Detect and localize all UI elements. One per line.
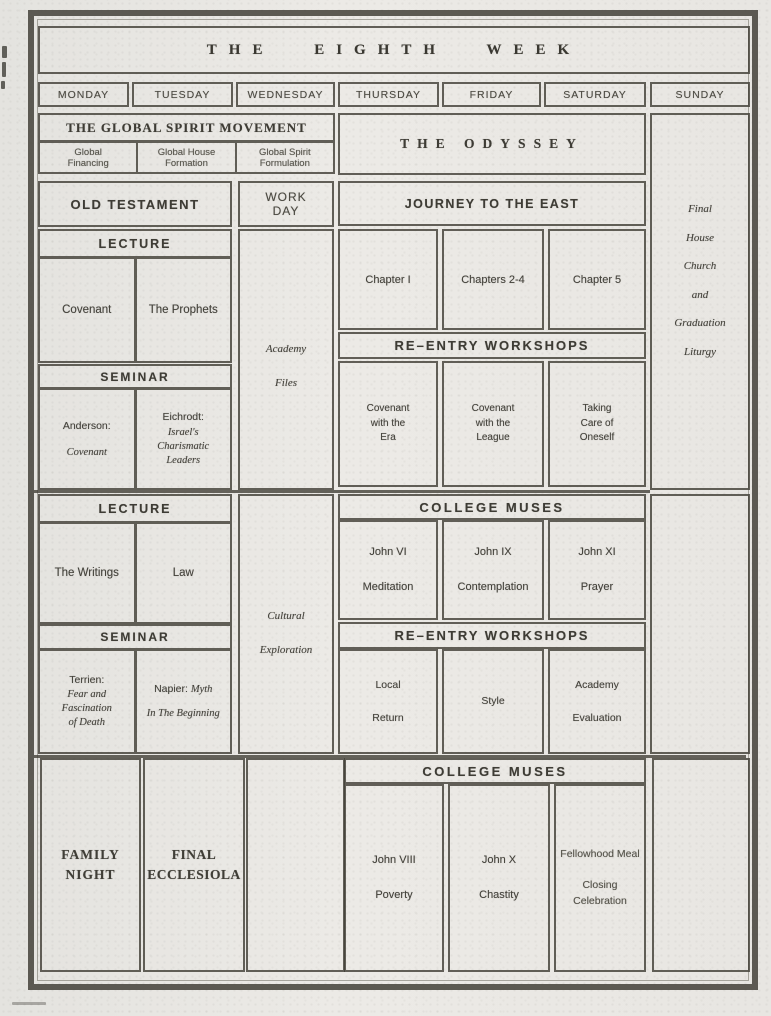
- cell-style: Style: [442, 649, 544, 754]
- cell-john-x-chastity: John X Chastity: [448, 784, 550, 972]
- cell-covenant-with-league: Covenant with the League: [442, 361, 544, 487]
- cell-work-day: WORK DAY: [238, 181, 334, 227]
- cell-anderson-covenant: Anderson: Covenant: [63, 420, 111, 458]
- section-seminar-1: SEMINAR Anderson: Covenant Eichrodt: Isr…: [38, 364, 232, 490]
- cell-wednesday-empty-bottom: [246, 758, 345, 972]
- seminar-1-header: SEMINAR: [40, 366, 230, 390]
- cell-fellowhood-meal: Fellowhood Meal Closing Celebration: [554, 784, 646, 972]
- cell-local-return: Local Return: [338, 649, 438, 754]
- lecture-2-header: LECTURE: [40, 496, 230, 524]
- reentry-1-header: RE–ENTRY WORKSHOPS: [338, 332, 646, 359]
- seminar-speaker: Eichrodt:: [163, 411, 204, 425]
- cell-the-writings: The Writings: [40, 524, 134, 622]
- cell-terrien-death: Terrien: Fear and Fascination of Death: [62, 674, 112, 730]
- cell-covenant-with-era: Covenant with the Era: [338, 361, 438, 487]
- cell-final-ecclesiola: FINAL ECCLESIOLA: [143, 758, 245, 972]
- day-header-monday: MONDAY: [38, 82, 129, 107]
- section-lecture-1: LECTURE Covenant The Prophets: [38, 229, 232, 363]
- cell-the-prophets: The Prophets: [134, 259, 231, 361]
- cell-global-financing: Global Financing: [40, 143, 136, 172]
- scan-artifact: [1, 81, 5, 89]
- cell-napier-myth: Napier: Myth In The Beginning: [147, 678, 220, 724]
- cell-covenant: Covenant: [40, 259, 134, 361]
- day-header-saturday: SATURDAY: [544, 82, 646, 107]
- day-header-friday: FRIDAY: [442, 82, 541, 107]
- lecture-1-header: LECTURE: [40, 231, 230, 259]
- scan-artifact: [2, 46, 7, 58]
- section-global-spirit: THE GLOBAL SPIRIT MOVEMENT Global Financ…: [38, 113, 335, 174]
- cell-sunday-empty-middle: [650, 494, 750, 754]
- cell-academy-files: Academy Files: [238, 229, 334, 490]
- seminar-speaker: Anderson:: [63, 420, 111, 432]
- section-lecture-2: LECTURE The Writings Law: [38, 494, 232, 624]
- cell-taking-care-of-oneself: Taking Care of Oneself: [548, 361, 646, 487]
- cell-family-night: FAMILY NIGHT: [40, 758, 141, 972]
- day-header-tuesday: TUESDAY: [132, 82, 233, 107]
- seminar-work: Covenant: [67, 447, 107, 458]
- day-header-thursday: THURSDAY: [338, 82, 439, 107]
- section-divider: [34, 490, 650, 493]
- seminar-speaker: Terrien:: [69, 674, 104, 688]
- cell-old-testament: OLD TESTAMENT: [38, 181, 232, 227]
- section-seminar-2: SEMINAR Terrien: Fear and Fascination of…: [38, 624, 232, 754]
- page-title: THE EIGHTH WEEK: [207, 42, 581, 59]
- cell-sunday-empty-bottom: [652, 758, 750, 972]
- cell-john-vi-meditation: John VI Meditation: [338, 520, 438, 620]
- cell-journey-to-the-east: JOURNEY TO THE EAST: [338, 181, 646, 226]
- cell-academy-evaluation: Academy Evaluation: [548, 649, 646, 754]
- day-header-wednesday: WEDNESDAY: [236, 82, 335, 107]
- scan-artifact: [2, 62, 6, 77]
- reentry-2-header: RE–ENTRY WORKSHOPS: [338, 622, 646, 649]
- cell-global-spirit-formulation: Global Spirit Formulation: [235, 143, 333, 172]
- seminar-work: Fear and Fascination of Death: [62, 688, 112, 729]
- cell-chapters-2-4: Chapters 2-4: [442, 229, 544, 330]
- muses-1-header: COLLEGE MUSES: [338, 494, 646, 520]
- cell-john-xi-prayer: John XI Prayer: [548, 520, 646, 620]
- cell-chapter-5: Chapter 5: [548, 229, 646, 330]
- cell-law: Law: [134, 524, 231, 622]
- cell-john-ix-contemplation: John IX Contemplation: [442, 520, 544, 620]
- cell-chapter-1: Chapter I: [338, 229, 438, 330]
- scan-artifact: [12, 1002, 46, 1005]
- title-box: THE EIGHTH WEEK: [38, 26, 750, 74]
- seminar-speaker: Napier:: [154, 683, 188, 695]
- cell-global-house-formation: Global House Formation: [136, 143, 234, 172]
- cell-cultural-exploration: Cultural Exploration: [238, 494, 334, 754]
- cell-john-viii-poverty: John VIII Poverty: [344, 784, 444, 972]
- cell-sunday-final-liturgy: Final House Church and Graduation Liturg…: [650, 113, 750, 490]
- global-spirit-header: THE GLOBAL SPIRIT MOVEMENT: [40, 115, 333, 143]
- day-header-sunday: SUNDAY: [650, 82, 750, 107]
- cell-eichrodt-leaders: Eichrodt: Israel's Charismatic Leaders: [157, 411, 209, 468]
- seminar-2-header: SEMINAR: [40, 626, 230, 651]
- seminar-work: Israel's Charismatic Leaders: [157, 426, 209, 467]
- section-odyssey: THE ODYSSEY: [338, 113, 646, 175]
- scanned-schedule-page: THE EIGHTH WEEK MONDAY TUESDAY WEDNESDAY…: [0, 0, 771, 1016]
- muses-2-header: COLLEGE MUSES: [344, 758, 646, 784]
